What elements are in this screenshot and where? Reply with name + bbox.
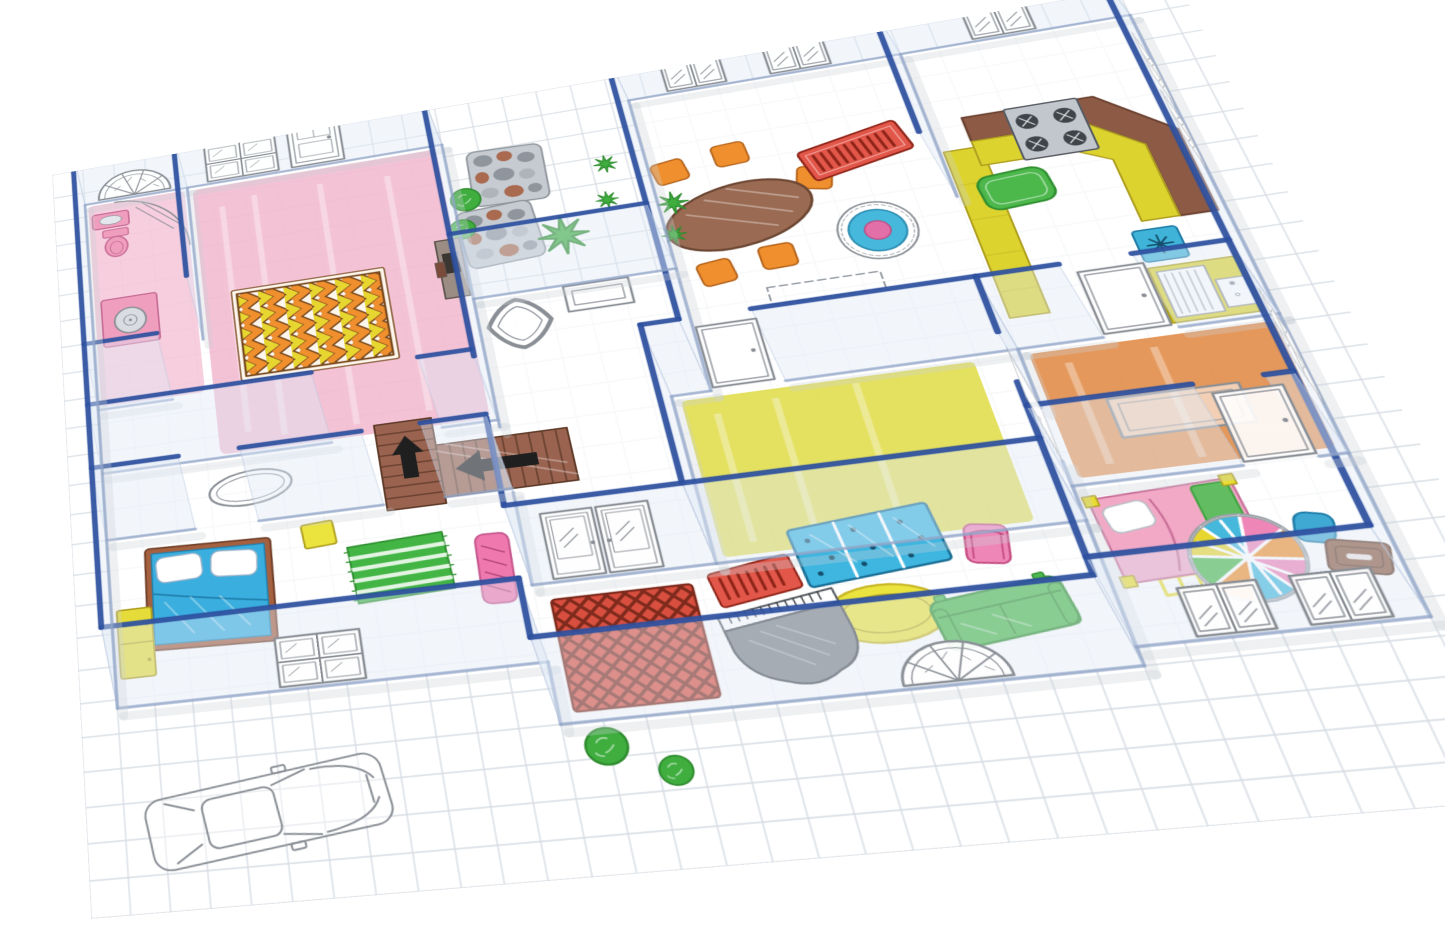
double-french-doors [540,501,664,580]
car-outline [141,744,399,880]
perspective-plan [52,0,1445,919]
floor-plan-illustration [0,0,1445,927]
bush [656,754,697,786]
front-door [284,103,345,167]
star-plant [591,153,620,174]
four-pane-window [275,629,367,687]
